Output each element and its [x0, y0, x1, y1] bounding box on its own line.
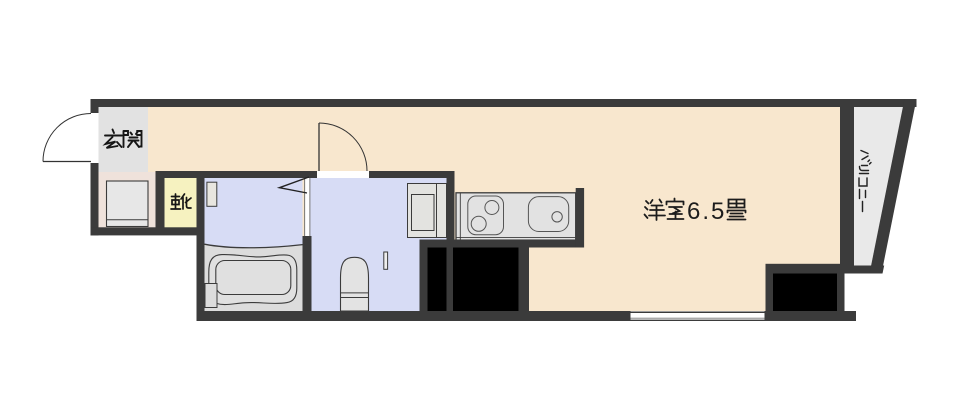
- svg-text:6.5: 6.5: [687, 198, 726, 225]
